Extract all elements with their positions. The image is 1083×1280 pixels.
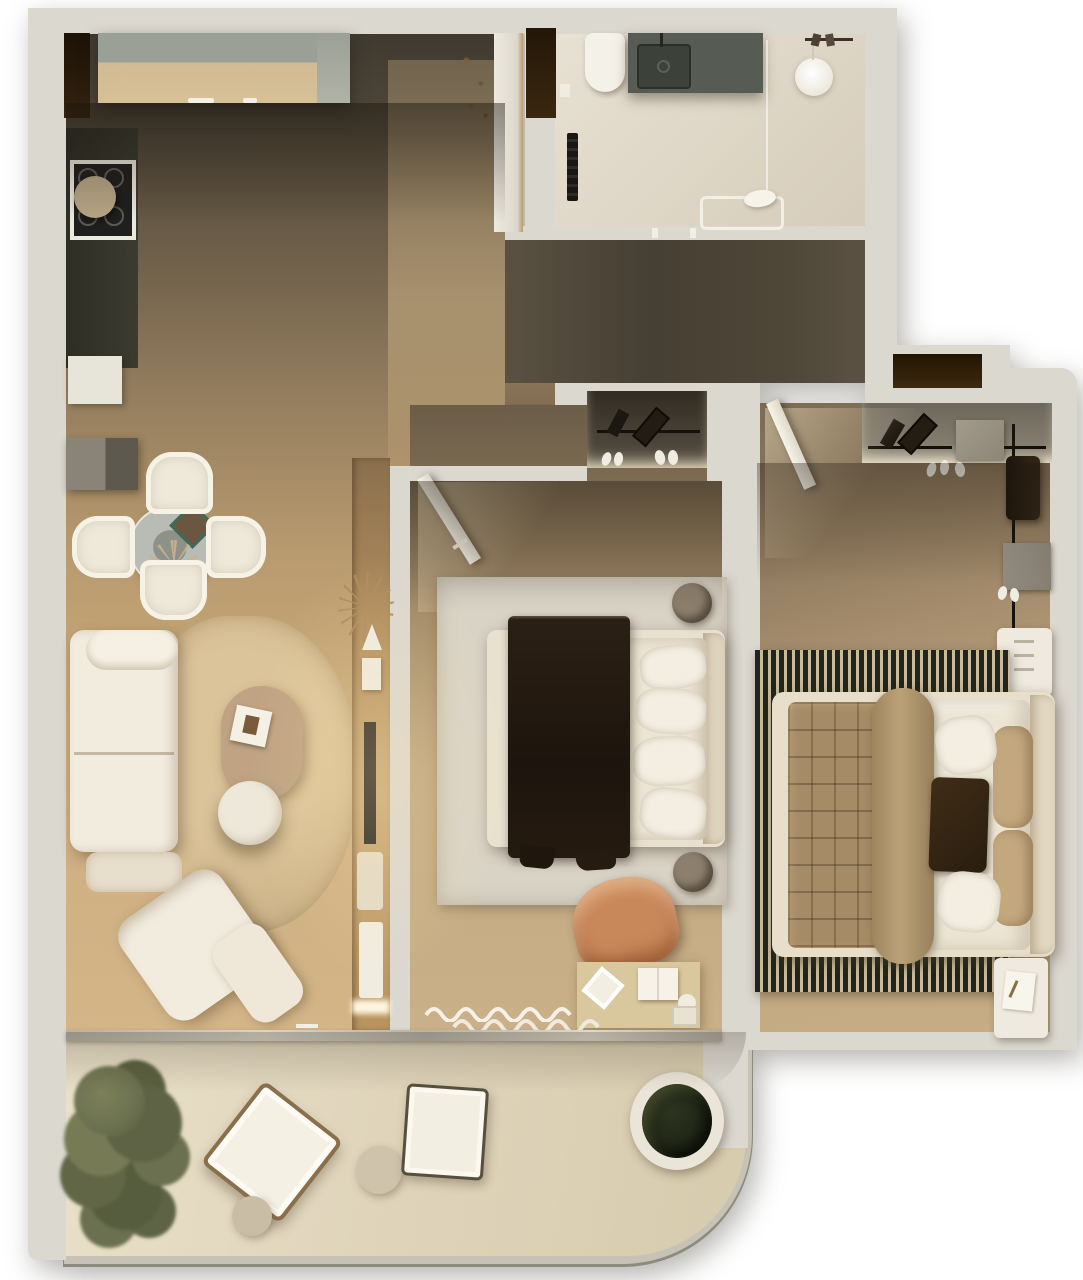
balcony-chair-2	[401, 1083, 489, 1180]
desk-box	[672, 1006, 698, 1026]
divider-shelf-white	[359, 922, 383, 998]
dining-chair-north	[146, 452, 213, 514]
side-table-round	[218, 781, 282, 845]
apartment-plan	[0, 0, 1083, 1280]
nightstand-tray-north	[672, 583, 712, 623]
dining-chair-south	[140, 560, 207, 620]
kitchen-fridge	[317, 33, 350, 103]
divider-deco-lower	[357, 852, 383, 910]
kitchen-sink-handle-2	[243, 98, 257, 103]
nightstand-paper	[1002, 971, 1036, 1012]
planter-plant	[642, 1084, 712, 1158]
desk-open-book	[638, 968, 678, 1000]
bath-door-jamb-right	[690, 228, 696, 238]
vanity-faucet	[660, 33, 663, 47]
dried-branch-plant	[452, 42, 500, 134]
sofa-pouf	[86, 852, 182, 892]
bed2-pillow-white-2	[935, 869, 1003, 935]
bed1-throw-dark	[508, 616, 630, 858]
balcony-tree	[74, 1066, 144, 1136]
wall-bathroom-bottom	[505, 226, 873, 240]
balcony-side-table-2	[356, 1146, 402, 1194]
radiator	[567, 133, 578, 201]
divider-a-frame-deco	[362, 624, 382, 650]
bed1-pillow-3	[632, 734, 707, 788]
kitchen-sink-handle	[188, 98, 214, 103]
niche-top-right-shaft	[893, 354, 982, 388]
rack-jacket	[1006, 456, 1040, 520]
toilet-brush	[560, 84, 570, 97]
wall-bedroom1-niche-right	[707, 405, 722, 481]
bed2-pillow-dark	[928, 777, 989, 873]
balcony-glass-door	[66, 1030, 722, 1041]
sink-drain	[657, 60, 670, 73]
floor-hallway	[505, 237, 873, 383]
wall-left	[28, 8, 66, 1260]
dining-chair-east	[206, 516, 266, 578]
cutting-board	[74, 176, 116, 218]
sofa-cushion-split	[74, 752, 174, 755]
glass-door-handle	[296, 1024, 318, 1028]
dining-chair-west	[72, 516, 135, 578]
ceiling-lamp	[795, 58, 833, 96]
bedroom2-storage-box	[956, 420, 1004, 460]
niche-hall-shaft	[526, 28, 556, 118]
bed2-pillow-tan-1	[993, 726, 1033, 828]
rack-box	[1003, 543, 1051, 590]
wall-right-upper	[865, 8, 897, 348]
nightstand-tray-south	[673, 852, 713, 892]
sofa-armrest	[86, 630, 178, 670]
niche-kitchen-shaft	[64, 33, 90, 118]
bed1-throw-tail-2	[575, 849, 616, 872]
bed2-headboard	[1030, 695, 1055, 954]
bath-door-jamb-left	[652, 228, 658, 238]
bed1-pillow-2	[634, 686, 707, 737]
tv-sideboard	[66, 438, 138, 490]
dresser-handles	[1014, 640, 1034, 643]
wall-bathroom-left-column	[525, 118, 555, 232]
toilet	[585, 33, 625, 92]
bed2-duvet-roll	[872, 688, 934, 964]
floor-plan-canvas	[0, 0, 1083, 1280]
bed1-throw-tail	[519, 844, 555, 869]
shower-glass-line	[766, 40, 768, 190]
divider-white-box	[362, 658, 381, 690]
kitchen-cabinet-white	[68, 356, 122, 404]
wall-bedroom1-left	[390, 466, 410, 1032]
kitchen-counter	[98, 33, 350, 103]
divider-ladder-shelf	[364, 722, 376, 844]
wall-top	[28, 8, 897, 34]
balcony-side-table-1	[232, 1196, 272, 1236]
bed2-quilt-tan	[788, 702, 880, 948]
